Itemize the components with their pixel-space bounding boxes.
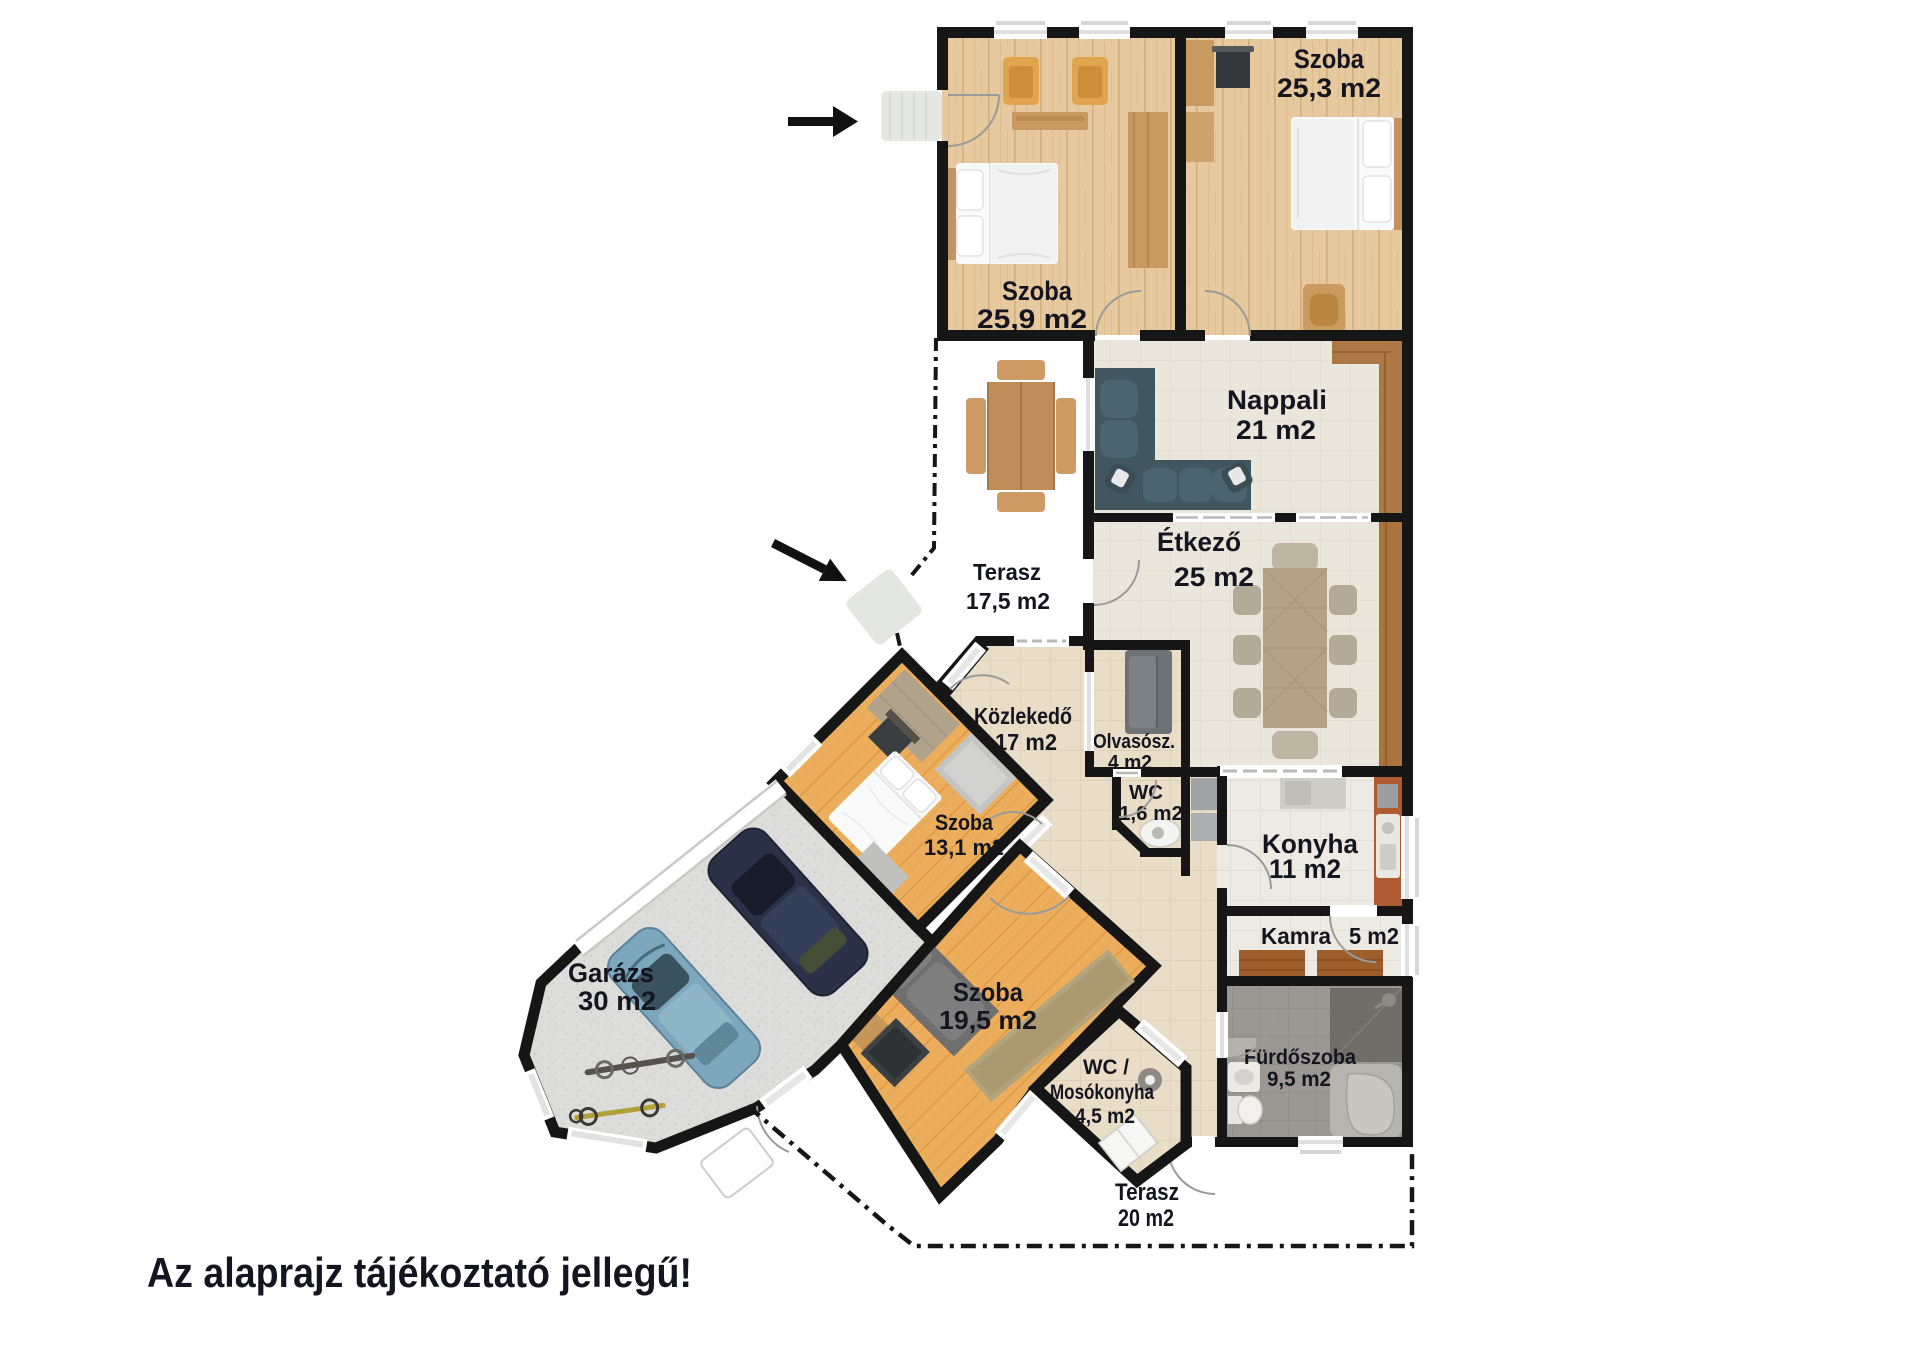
svg-text:Szoba: Szoba: [1294, 44, 1365, 74]
svg-text:WC: WC: [1129, 782, 1163, 804]
svg-text:30 m2: 30 m2: [578, 986, 656, 1016]
svg-text:1,6 m2: 1,6 m2: [1119, 803, 1183, 825]
svg-text:4,5 m2: 4,5 m2: [1075, 1105, 1135, 1128]
svg-text:Terasz: Terasz: [1115, 1179, 1179, 1206]
svg-text:13,1 m2: 13,1 m2: [924, 835, 1004, 860]
svg-text:Garázs: Garázs: [568, 958, 654, 988]
svg-text:Közlekedő: Közlekedő: [974, 703, 1072, 729]
svg-text:Szoba: Szoba: [1002, 276, 1073, 306]
svg-text:Mosókonyha: Mosókonyha: [1050, 1081, 1154, 1104]
svg-text:Szoba: Szoba: [935, 810, 994, 835]
svg-text:25,3 m2: 25,3 m2: [1277, 73, 1381, 103]
svg-text:5 m2: 5 m2: [1349, 923, 1399, 949]
svg-text:Nappali: Nappali: [1227, 385, 1327, 415]
svg-text:17,5 m2: 17,5 m2: [966, 588, 1050, 614]
svg-text:Az alaprajz tájékoztató jelleg: Az alaprajz tájékoztató jellegű!: [147, 1249, 692, 1296]
svg-text:Étkező: Étkező: [1157, 526, 1241, 557]
svg-text:Fürdőszoba: Fürdőszoba: [1244, 1046, 1356, 1069]
svg-text:9,5 m2: 9,5 m2: [1267, 1068, 1331, 1091]
svg-text:Terasz: Terasz: [973, 559, 1041, 585]
svg-text:WC /: WC /: [1083, 1056, 1129, 1079]
svg-text:25 m2: 25 m2: [1174, 562, 1254, 592]
svg-text:20 m2: 20 m2: [1118, 1205, 1174, 1232]
svg-text:21 m2: 21 m2: [1236, 415, 1316, 445]
svg-text:Szoba: Szoba: [953, 977, 1023, 1007]
svg-text:11 m2: 11 m2: [1269, 854, 1341, 884]
svg-text:19,5 m2: 19,5 m2: [939, 1005, 1037, 1035]
svg-text:Olvasósz.: Olvasósz.: [1093, 731, 1175, 753]
svg-text:Kamra: Kamra: [1261, 923, 1331, 949]
svg-text:25,9 m2: 25,9 m2: [977, 304, 1087, 334]
